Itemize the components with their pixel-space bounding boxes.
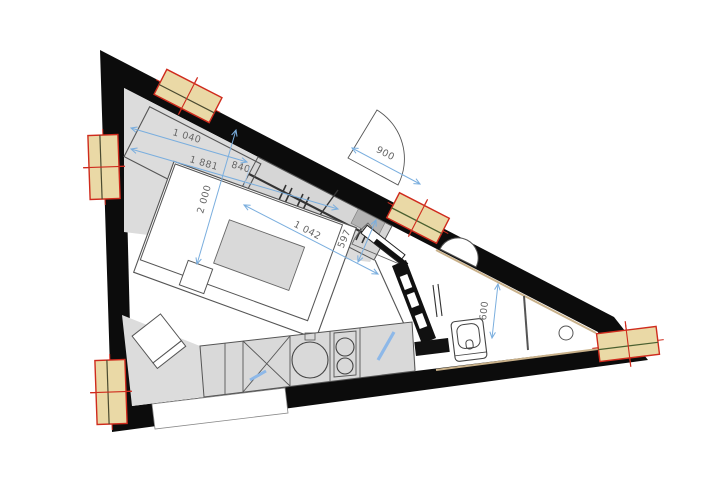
dim-label-600: 600 bbox=[478, 301, 491, 321]
floor-drain-icon bbox=[559, 326, 573, 340]
entry-door-swing bbox=[348, 110, 404, 185]
floor-plan-canvas: 1 040 1 881 840 2 000 1 042 597 900 600 bbox=[0, 0, 710, 490]
toilet-icon bbox=[451, 318, 488, 362]
floor-plan-drawing: 1 040 1 881 840 2 000 1 042 597 900 600 bbox=[0, 0, 710, 490]
